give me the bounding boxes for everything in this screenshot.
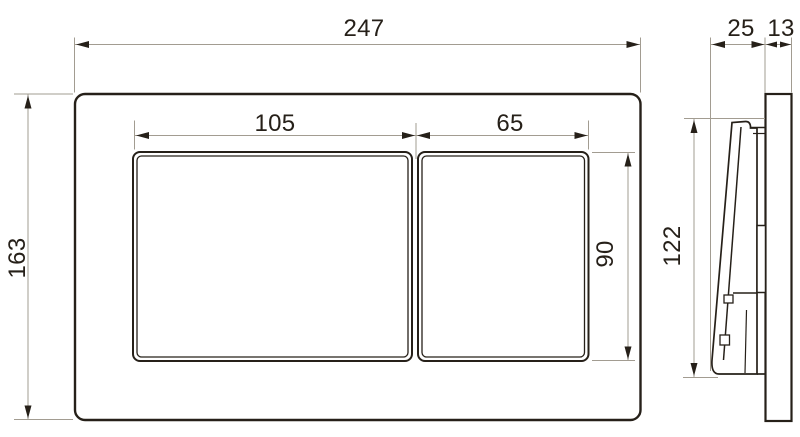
side-plate-outline <box>766 94 792 421</box>
dimension-small-button-width: 65 <box>417 110 589 150</box>
dim-label-plate-height: 163 <box>4 238 31 279</box>
side-view <box>712 94 792 421</box>
dimension-plate-height: 163 <box>4 94 73 420</box>
arrowhead-right <box>780 42 791 48</box>
arrowhead-right <box>402 132 415 139</box>
technical-drawing-canvas: 247 163 105 65 90 <box>0 0 800 437</box>
dim-label-plate-width: 247 <box>344 15 385 42</box>
dim-label-plate-thickness: 13 <box>767 15 794 42</box>
arrowhead-left <box>136 132 149 139</box>
front-view <box>75 94 641 420</box>
dim-label-side-panel-height: 122 <box>659 226 686 267</box>
dim-label-large-button-width: 105 <box>255 110 296 137</box>
arrowhead-down <box>25 406 32 419</box>
arrowhead-down <box>691 363 698 376</box>
dim-label-small-button-width: 65 <box>496 110 523 137</box>
arrowhead-up <box>625 154 632 167</box>
arrowhead-up <box>691 120 698 133</box>
arrowhead-left <box>712 41 725 48</box>
dim-label-button-depth: 25 <box>727 15 754 42</box>
side-latch-detail-upper <box>724 295 733 303</box>
front-plate-outline <box>75 94 641 420</box>
large-button-outline <box>133 152 412 361</box>
side-button-profile <box>712 121 757 374</box>
arrowhead-down <box>625 347 632 360</box>
side-latch-detail-lower <box>720 335 730 345</box>
arrowhead-left <box>76 41 89 48</box>
large-button-inner-line <box>137 156 408 357</box>
arrowhead-right <box>627 41 640 48</box>
arrowhead-left <box>417 132 430 139</box>
dimension-plate-thickness: 13 <box>766 15 795 93</box>
dimension-plate-width: 247 <box>75 15 641 93</box>
dim-label-button-height: 90 <box>592 240 619 267</box>
small-button-inner-line <box>422 156 585 357</box>
side-mount-bracket <box>757 226 766 293</box>
arrowhead-right <box>575 132 588 139</box>
arrowhead-left <box>766 42 777 48</box>
dimension-button-height: 90 <box>592 153 635 361</box>
flush-plate-dimension-drawing: 247 163 105 65 90 <box>0 0 800 437</box>
arrowhead-right <box>752 41 765 48</box>
arrowhead-up <box>25 96 32 109</box>
small-button-outline <box>418 152 589 361</box>
